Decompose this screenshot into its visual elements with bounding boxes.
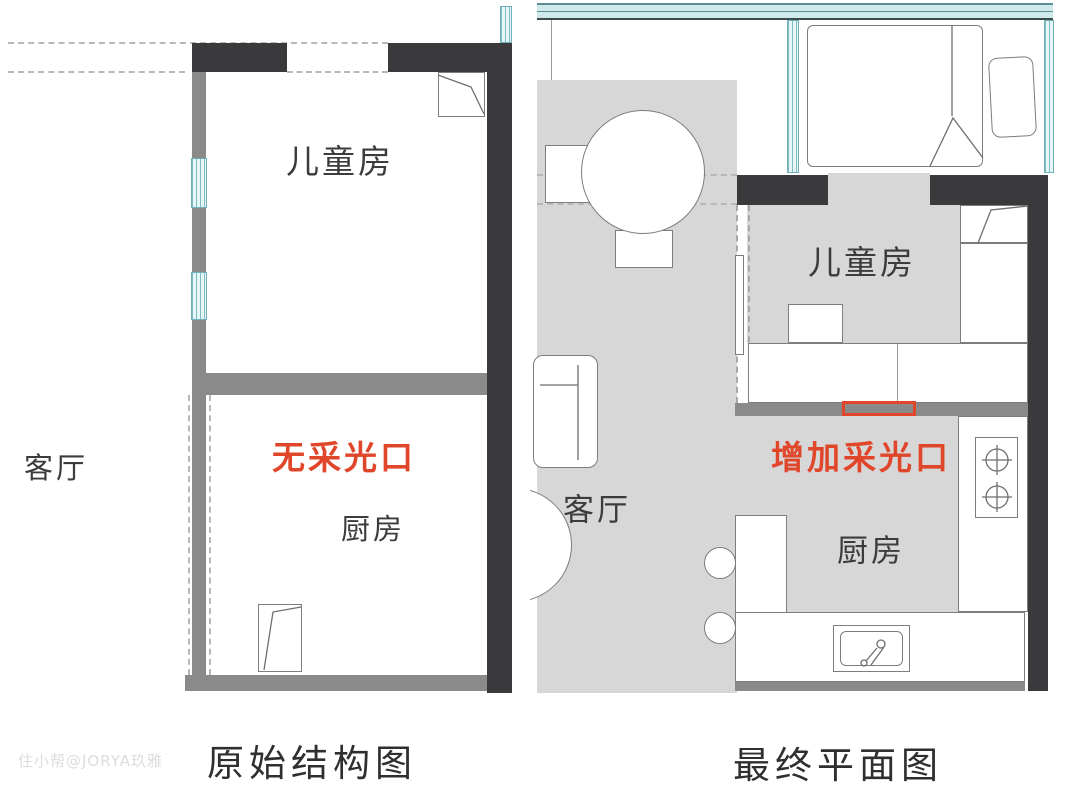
wall-right (487, 43, 512, 693)
door-kids-room (438, 72, 485, 117)
label-added-light-opening: 增加采光口 (771, 431, 951, 479)
wall-black-left-segment (737, 175, 828, 205)
label-no-light-opening: 无采光口 (272, 431, 416, 479)
wall-right (1028, 175, 1048, 691)
sliding-door (735, 255, 744, 355)
bed (807, 25, 983, 167)
dining-chair-bottom (615, 230, 673, 268)
window-band-top (537, 3, 1053, 20)
original-plan: 儿童房 无采光口 厨房 客厅 (0, 0, 530, 710)
label-kids-room: 儿童房 (286, 135, 394, 183)
window-strip-right (1044, 20, 1054, 173)
window-left-lower (191, 272, 207, 320)
wall-bottom (735, 682, 1025, 691)
window-strip-middle (787, 20, 799, 173)
bar-stool (704, 547, 736, 579)
kids-desk-bed-unit (748, 343, 1028, 403)
pillow (988, 56, 1037, 138)
dashed-line (8, 71, 185, 73)
desk-divider-line (897, 344, 898, 402)
door-kids-room (960, 205, 1028, 243)
caption-original-plan: 原始结构图 (207, 733, 417, 785)
door-kitchen (258, 604, 302, 672)
label-living: 客厅 (24, 445, 88, 487)
caption-final-plan: 最终平面图 (733, 735, 943, 785)
balcony-partition-line (551, 20, 552, 80)
dashed-line (287, 71, 388, 73)
label-kitchen: 厨房 (837, 526, 905, 571)
watermark: 住小帮@JORYA玖雅 (18, 750, 163, 771)
window-left-upper (191, 158, 207, 208)
wall-top-left-segment (192, 43, 287, 72)
label-kids-room: 儿童房 (808, 236, 916, 284)
nightstand (788, 304, 843, 343)
floor-wall-opening (828, 173, 930, 205)
stove (975, 437, 1018, 518)
round-dining-table (581, 110, 705, 234)
wardrobe (960, 243, 1028, 343)
sink-basin (840, 631, 903, 666)
label-living: 客厅 (563, 485, 631, 530)
sofa (533, 355, 598, 468)
window-strip-top (500, 6, 512, 43)
wall-middle (192, 373, 487, 395)
wall-bottom (185, 675, 487, 691)
dashed-line (209, 395, 211, 675)
dashed-line (188, 395, 190, 675)
new-light-opening-highlight (842, 401, 916, 416)
floorplan-comparison: 儿童房 无采光口 厨房 客厅 (0, 0, 1080, 785)
final-plan: 儿童房 增加采光口 客厅 厨房 (530, 0, 1080, 710)
bar-stool (704, 612, 736, 644)
label-kitchen: 厨房 (341, 506, 405, 548)
